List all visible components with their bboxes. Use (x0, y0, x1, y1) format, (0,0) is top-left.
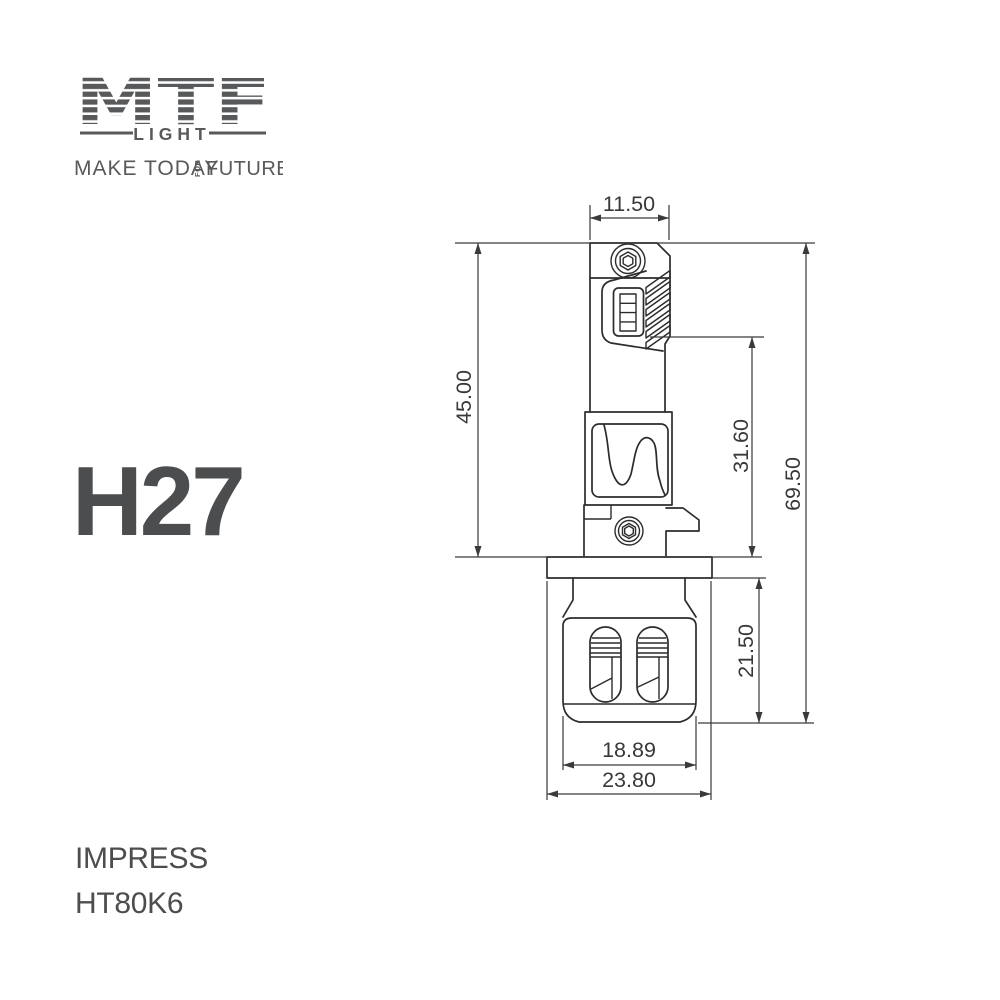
dim-label-base-height: 21.50 (734, 624, 758, 678)
product-series: IMPRESS (75, 842, 208, 876)
dim-label-body-width: 18.89 (602, 738, 656, 762)
base-neck (563, 578, 696, 617)
dim-label-flange-width: 23.80 (602, 768, 656, 792)
dim-label-total-height: 69.50 (781, 457, 805, 511)
dim-label-upper-height: 45.00 (452, 370, 476, 424)
side-screw-icon (615, 517, 643, 545)
dim-label-mid-height: 31.60 (729, 419, 753, 473)
flange (547, 557, 712, 578)
bulb-outline (547, 243, 712, 722)
dimension-lines: 11.50 45.00 31.60 69.50 21.50 18.89 23.8… (452, 192, 815, 800)
vent-slot-left (590, 627, 621, 702)
dim-label-top-width: 11.50 (603, 192, 655, 216)
led-chip-window (614, 288, 644, 336)
base-cylinder (563, 618, 696, 722)
page: MTF LIGHT MAKE TODAY FOR FUTURE H27 (0, 0, 1000, 1000)
heatsink-wave (604, 425, 665, 495)
collar (584, 505, 699, 557)
stem-right-edge (665, 278, 670, 412)
mount-tab (666, 508, 699, 557)
heatsink-wave-block (585, 412, 672, 505)
product-sku: HT80K6 (75, 887, 183, 921)
vent-slot-right (637, 627, 668, 702)
